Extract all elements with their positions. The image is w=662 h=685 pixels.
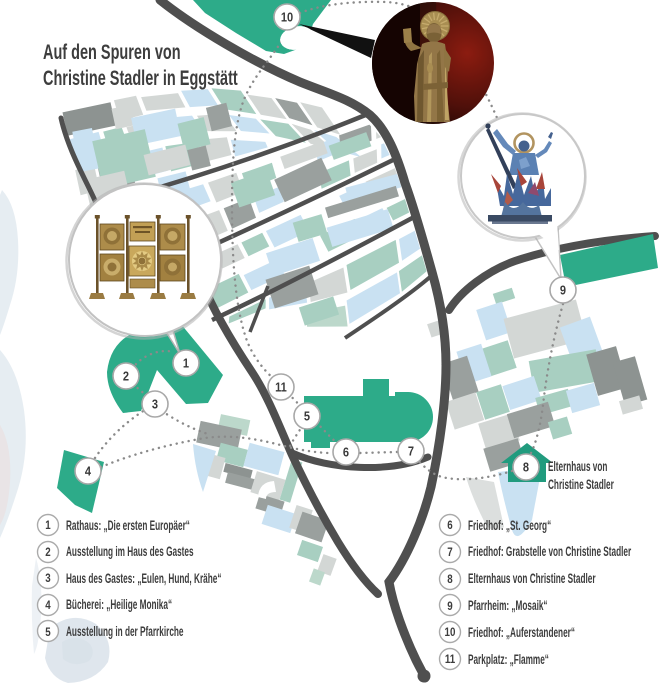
- svg-text:Elternhaus von Christine Stadl: Elternhaus von Christine Stadler: [468, 572, 596, 586]
- svg-text:5: 5: [304, 409, 310, 424]
- svg-text:Auf den Spuren von: Auf den Spuren von: [43, 40, 181, 63]
- svg-text:10: 10: [445, 626, 456, 639]
- svg-text:11: 11: [445, 653, 455, 666]
- svg-text:Friedhof: Grabstelle von Chris: Friedhof: Grabstelle von Christine Stadl…: [468, 545, 632, 559]
- svg-text:7: 7: [447, 546, 452, 559]
- svg-text:2: 2: [123, 369, 129, 384]
- svg-text:8: 8: [447, 573, 452, 586]
- svg-text:6: 6: [343, 445, 349, 460]
- svg-text:3: 3: [152, 397, 158, 412]
- svg-text:4: 4: [45, 599, 50, 612]
- svg-text:10: 10: [281, 10, 294, 25]
- svg-text:7: 7: [408, 444, 414, 459]
- svg-text:Ausstellung in der Pfarrkirche: Ausstellung in der Pfarrkirche: [66, 625, 184, 639]
- svg-text:Christine Stadler: Christine Stadler: [548, 478, 614, 492]
- svg-text:8: 8: [523, 460, 529, 475]
- svg-text:Christine Stadler in Eggstätt: Christine Stadler in Eggstätt: [43, 66, 238, 89]
- svg-text:1: 1: [183, 356, 189, 371]
- svg-text:2: 2: [45, 546, 50, 559]
- svg-text:1: 1: [45, 519, 50, 532]
- svg-text:3: 3: [45, 572, 50, 585]
- svg-text:Bücherei: „Heilige Monika“: Bücherei: „Heilige Monika“: [66, 598, 172, 612]
- svg-text:Pfarrheim: „Mosaik“: Pfarrheim: „Mosaik“: [468, 599, 548, 613]
- svg-text:Haus des Gastes: „Eulen, Hund,: Haus des Gastes: „Eulen, Hund, Krähe“: [66, 572, 221, 586]
- svg-text:Friedhof: „Auferstandener“: Friedhof: „Auferstandener“: [468, 626, 575, 640]
- svg-text:Elternhaus von: Elternhaus von: [548, 460, 608, 474]
- svg-text:Rathaus: „Die ersten Europäer“: Rathaus: „Die ersten Europäer“: [66, 519, 190, 533]
- svg-text:9: 9: [447, 600, 452, 613]
- svg-text:Friedhof: „St. Georg“: Friedhof: „St. Georg“: [468, 519, 551, 533]
- svg-text:11: 11: [275, 380, 287, 395]
- svg-text:4: 4: [85, 464, 91, 479]
- svg-text:6: 6: [447, 519, 452, 532]
- svg-text:Parkplatz: „Flamme“: Parkplatz: „Flamme“: [468, 653, 549, 667]
- svg-text:Ausstellung im Haus des Gastes: Ausstellung im Haus des Gastes: [66, 545, 194, 559]
- svg-text:5: 5: [45, 626, 50, 639]
- svg-text:9: 9: [560, 283, 566, 298]
